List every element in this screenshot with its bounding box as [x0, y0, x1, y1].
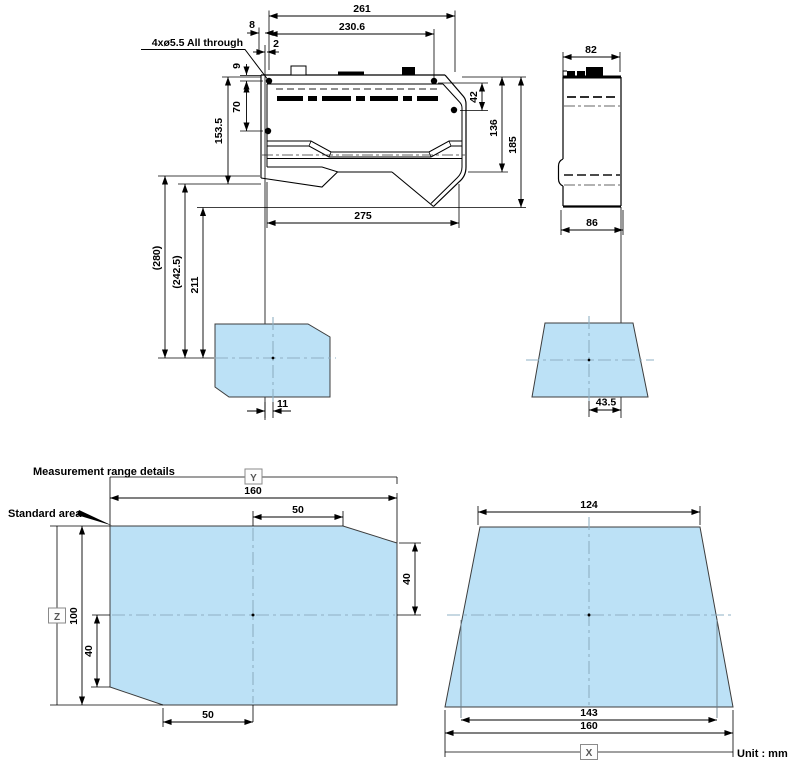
dim-143: 143	[580, 707, 598, 719]
top-button	[291, 66, 306, 75]
unit-note: Unit : mm	[737, 748, 788, 760]
dim-242-5: (242.5)	[171, 255, 183, 288]
callout-leader-line	[141, 50, 267, 79]
dimension-drawing: 4xø5.5 All through 261 230.6 8 2 9 70 15…	[0, 0, 800, 770]
dim-275: 275	[354, 210, 372, 222]
z-axis-label: Z	[54, 612, 60, 623]
mounting-hole	[431, 78, 437, 84]
vent-slot	[322, 96, 351, 101]
standard-area-label: Standard area	[8, 508, 82, 520]
right-edge-inner	[431, 84, 462, 204]
hole-callout-label: 4xø5.5 All through	[152, 37, 243, 49]
side-left-bump	[559, 159, 564, 186]
dim-right-40: 40	[401, 573, 413, 585]
dim-86: 86	[586, 217, 598, 229]
vent-slot	[417, 96, 438, 101]
dim-11: 11	[277, 398, 288, 410]
dim-280: (280)	[151, 246, 163, 271]
top-connector-strip	[338, 72, 364, 76]
dim-160: 160	[244, 485, 262, 497]
vent-slot	[370, 96, 398, 101]
dim-42: 42	[468, 91, 480, 103]
dim-bottom-50: 50	[202, 709, 214, 721]
range-side-view: 124 143 160 X	[445, 499, 733, 760]
top-connector	[402, 67, 415, 75]
standard-area-leader	[77, 510, 112, 526]
dim-211: 211	[189, 276, 201, 293]
side-view-body	[559, 67, 622, 207]
vent-slots	[277, 96, 438, 101]
dim-124: 124	[580, 499, 598, 511]
dim-100: 100	[68, 607, 80, 625]
dim-9: 9	[231, 63, 243, 69]
vent-slot	[308, 96, 317, 101]
mounting-hole	[451, 107, 457, 113]
v-notch-left	[392, 172, 434, 207]
range-side-center-dot	[588, 614, 591, 617]
side-top-pad	[567, 71, 575, 76]
dim-70: 70	[231, 101, 243, 113]
left-chin-wedge	[261, 172, 338, 187]
dim-230-6: 230.6	[339, 21, 365, 33]
dim-43-5: 43.5	[596, 397, 617, 409]
side-top-pad	[577, 71, 585, 76]
mounting-hole	[265, 128, 271, 134]
drawing-canvas: 4xø5.5 All through 261 230.6 8 2 9 70 15…	[0, 0, 800, 770]
vent-slot	[277, 96, 303, 101]
lower-kink-line	[267, 167, 392, 172]
y-axis-label: Y	[250, 473, 257, 484]
dim-153-5: 153.5	[213, 118, 225, 144]
dim-left-40: 40	[83, 645, 95, 657]
dim-185: 185	[507, 136, 519, 154]
front-area-center-dot	[272, 357, 275, 360]
dim-bottom-160: 160	[580, 720, 598, 732]
mounting-hole	[266, 78, 272, 84]
side-area-center-dot	[588, 359, 591, 362]
dim-82: 82	[585, 44, 597, 56]
dim-2: 2	[273, 38, 279, 50]
vent-slot	[356, 96, 365, 101]
range-front-center-dot	[252, 614, 255, 617]
x-axis-label: X	[586, 748, 593, 759]
ext-line	[265, 402, 273, 418]
front-view-body	[261, 66, 466, 207]
dim-261: 261	[353, 3, 371, 15]
side-top-tab	[586, 67, 603, 77]
dim-8: 8	[249, 19, 255, 31]
range-front-view: Y 160 Standard area 50 40 100 40 Z 50	[8, 469, 421, 727]
dim-top-50: 50	[292, 504, 304, 516]
vent-slot	[403, 96, 412, 101]
dim-136: 136	[488, 119, 500, 137]
front-view-dimensions: 261 230.6 8 2 9 70 153.5 (280) (242.5) 2…	[151, 3, 526, 420]
range-details-title: Measurement range details	[33, 466, 175, 478]
